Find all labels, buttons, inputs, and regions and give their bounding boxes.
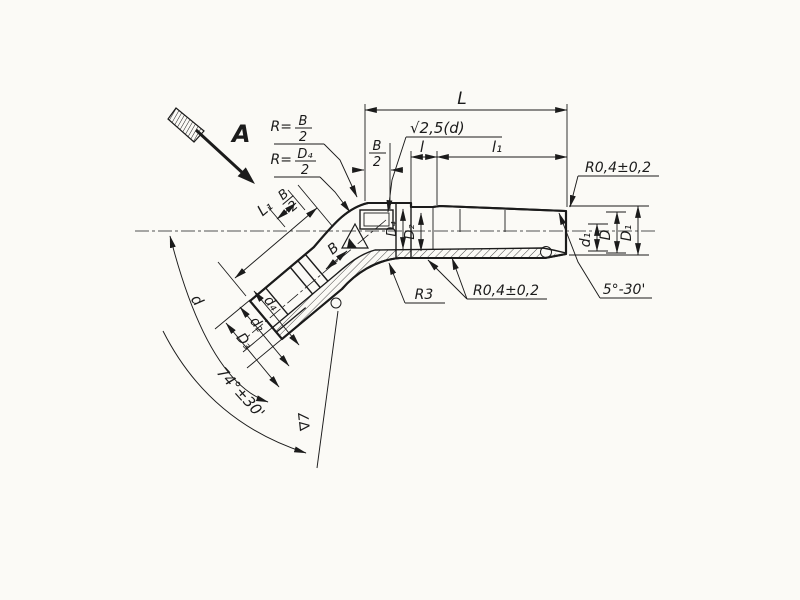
finish-triangle-icon: [342, 224, 368, 248]
part-body: [250, 203, 566, 339]
corner-radius-bottom-label: R0,4±0,2: [473, 283, 539, 299]
inner-radius-den: 2: [301, 163, 309, 178]
inner-radius-num: D₄: [297, 147, 313, 162]
dim-label-bend-angle: 74°±30': [213, 363, 268, 421]
dim-b-half-top: B 2: [352, 139, 403, 170]
drawing-canvas: L B 2 √2,5(d) l l₁ R0,4±0,2 d₁ D D₁ 5°-3…: [0, 0, 800, 600]
arm-ring-line: [305, 254, 328, 281]
outer-radius-den: 2: [299, 130, 307, 145]
inner-radius-prefix: R=: [271, 152, 292, 168]
inner-radius-leader: R= D₄ 2: [271, 147, 350, 212]
angle-ray: [317, 311, 338, 468]
dim-D4: D₄: [385, 209, 403, 249]
dim-label-L1: L₁: [253, 197, 276, 220]
dim-L1: L₁: [235, 197, 317, 278]
dim-label-D: D: [598, 229, 614, 240]
dim-label-arm-b-den: 2: [285, 198, 301, 215]
finish-note-leader: √2,5(d): [388, 119, 502, 212]
dim-label-b-half-num: B: [373, 139, 382, 154]
dim-label-D1: D₁: [619, 225, 635, 241]
dim-label-D4: D₄: [385, 221, 400, 237]
dim-label-l1: l₁: [492, 138, 502, 156]
dim-D: D: [598, 212, 617, 253]
view-direction-arrow: A: [168, 108, 255, 184]
dim-label-B: B: [325, 240, 343, 258]
arrow-feather-icon: [168, 108, 204, 142]
dim-label-D2: D₂: [403, 224, 418, 239]
dim-D2: D₂: [403, 213, 421, 251]
centerline-inclined: [246, 220, 386, 338]
dim-label-d4: d₄: [260, 293, 282, 315]
finish-note-label: √2,5(d): [410, 119, 465, 137]
dim-d1: d₁: [578, 224, 597, 251]
dim-label-b-half-den: 2: [373, 155, 381, 170]
dim-label-D3: D₃: [233, 330, 256, 353]
dim-b-half-arm: B 2: [274, 185, 304, 219]
seat-notch-arm: [331, 298, 341, 308]
taper-angle-label: 5°-30': [603, 282, 646, 298]
dim-label-d1: d₁: [578, 233, 594, 248]
corner-radius-top-label: R0,4±0,2: [585, 160, 651, 176]
corner-radius-bottom-leader: R0,4±0,2: [428, 258, 547, 299]
outer-radius-prefix: R=: [271, 119, 292, 135]
view-label: A: [230, 120, 251, 148]
dim-label-l: l: [420, 138, 425, 156]
dim-label-d: d: [187, 291, 207, 310]
technical-drawing: L B 2 √2,5(d) l l₁ R0,4±0,2 d₁ D D₁ 5°-3…: [0, 0, 800, 600]
arm-ring-line: [290, 267, 313, 294]
dim-label-L: L: [457, 89, 466, 109]
outer-radius-num: B: [299, 114, 308, 129]
corner-radius-top-leader: R0,4±0,2: [570, 160, 659, 207]
finish7-label: ∇7: [296, 411, 314, 432]
dim-D1: D₁: [619, 206, 638, 255]
arm-ring-line: [298, 261, 321, 288]
fillet-radius-label: R3: [415, 287, 434, 303]
